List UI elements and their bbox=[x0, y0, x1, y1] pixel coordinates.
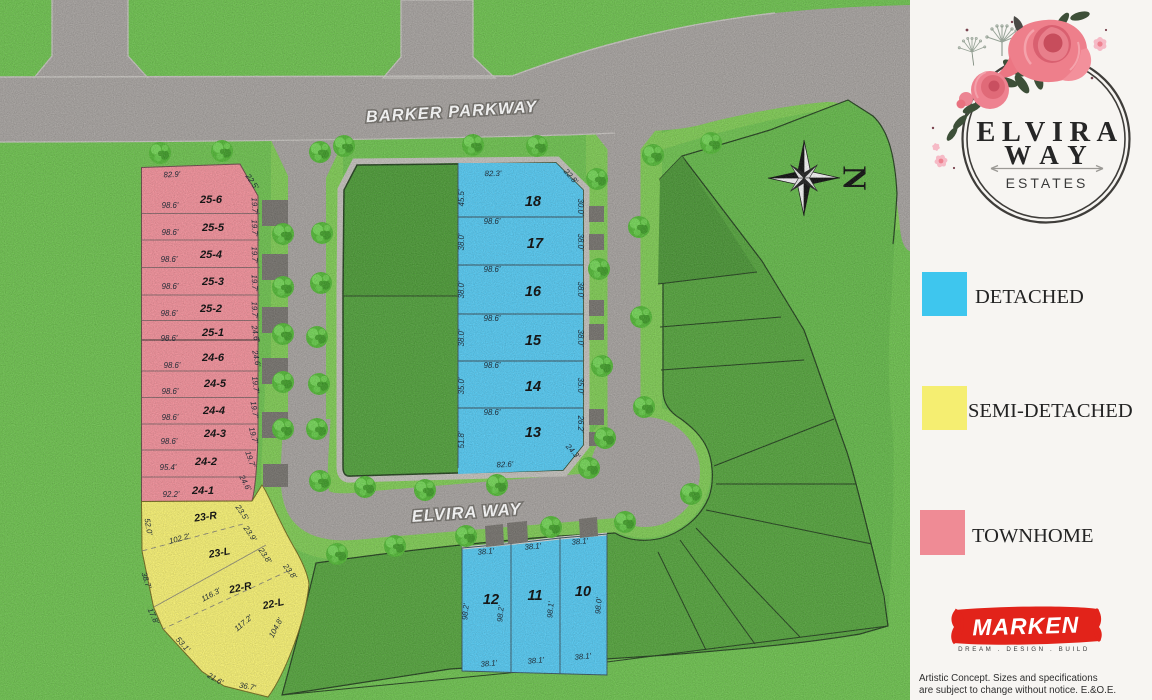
svg-text:Artistic Concept. Sizes and sp: Artistic Concept. Sizes and specificatio… bbox=[919, 673, 1098, 684]
svg-text:are subject to change without: are subject to change without notice. E.… bbox=[919, 685, 1116, 696]
svg-text:ESTATES: ESTATES bbox=[1006, 175, 1089, 191]
svg-text:SEMI-DETACHED: SEMI-DETACHED bbox=[968, 400, 1133, 422]
svg-text:DREAM . DESIGN . BUILD: DREAM . DESIGN . BUILD bbox=[958, 646, 1090, 653]
svg-text:TOWNHOME: TOWNHOME bbox=[972, 525, 1093, 547]
svg-text:MARKEN: MARKEN bbox=[972, 612, 1080, 641]
svg-text:DETACHED: DETACHED bbox=[975, 286, 1084, 308]
svg-text:WAY: WAY bbox=[1004, 140, 1098, 170]
